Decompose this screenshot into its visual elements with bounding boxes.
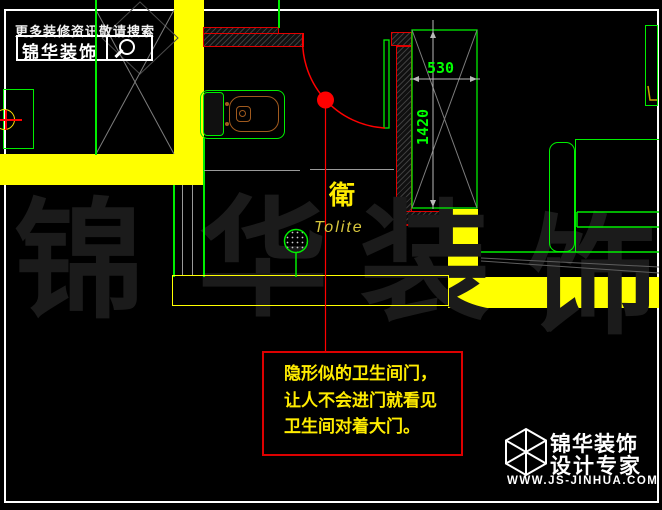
footer-website-link[interactable]: WWW.JS-JINHUA.COM xyxy=(507,475,658,487)
cad-floorplan-image: 锦 华 装 饰 xyxy=(0,0,662,510)
